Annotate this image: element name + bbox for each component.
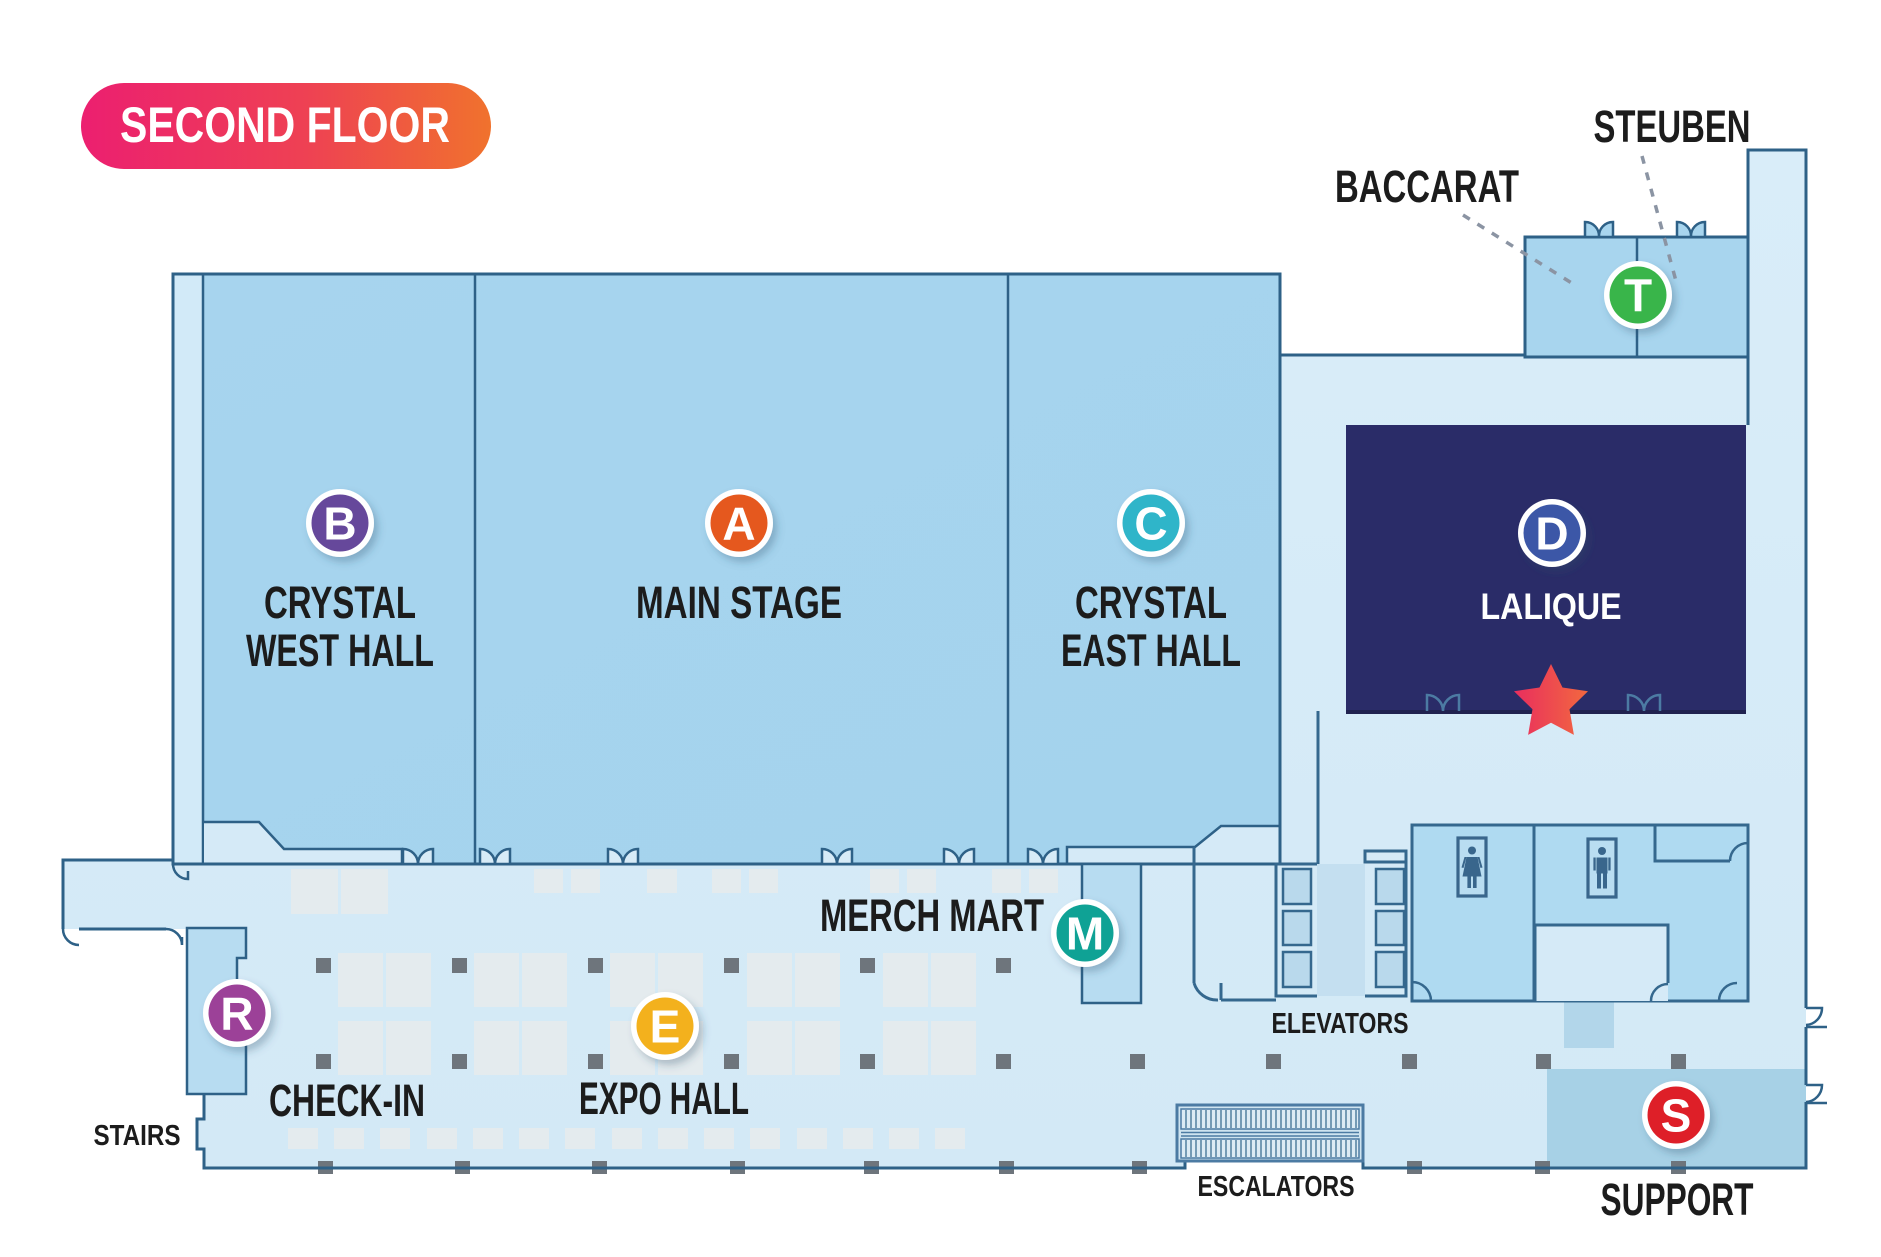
svg-text:R: R [220, 988, 253, 1040]
svg-text:MERCH MART: MERCH MART [820, 890, 1044, 941]
svg-text:EAST HALL: EAST HALL [1061, 625, 1241, 676]
svg-text:EXPO HALL: EXPO HALL [579, 1073, 749, 1124]
svg-text:LALIQUE: LALIQUE [1481, 586, 1622, 627]
svg-text:B: B [323, 498, 356, 550]
svg-text:C: C [1134, 498, 1167, 550]
svg-text:ESCALATORS: ESCALATORS [1198, 1171, 1355, 1203]
svg-text:S: S [1661, 1090, 1692, 1142]
svg-text:CRYSTAL: CRYSTAL [1075, 577, 1227, 628]
svg-text:SUPPORT: SUPPORT [1601, 1174, 1754, 1225]
svg-text:WEST HALL: WEST HALL [246, 625, 434, 676]
svg-text:E: E [650, 1001, 681, 1053]
svg-text:STEUBEN: STEUBEN [1594, 101, 1751, 152]
svg-text:D: D [1535, 508, 1568, 560]
svg-text:A: A [722, 498, 755, 550]
svg-text:CHECK-IN: CHECK-IN [269, 1075, 425, 1126]
svg-text:SECOND FLOOR: SECOND FLOOR [120, 97, 450, 153]
svg-text:STAIRS: STAIRS [94, 1120, 181, 1152]
svg-text:BACCARAT: BACCARAT [1335, 161, 1519, 212]
svg-text:M: M [1066, 908, 1104, 960]
svg-text:ELEVATORS: ELEVATORS [1272, 1008, 1409, 1040]
svg-text:T: T [1624, 270, 1652, 322]
svg-text:CRYSTAL: CRYSTAL [264, 577, 416, 628]
svg-text:MAIN STAGE: MAIN STAGE [636, 577, 842, 628]
